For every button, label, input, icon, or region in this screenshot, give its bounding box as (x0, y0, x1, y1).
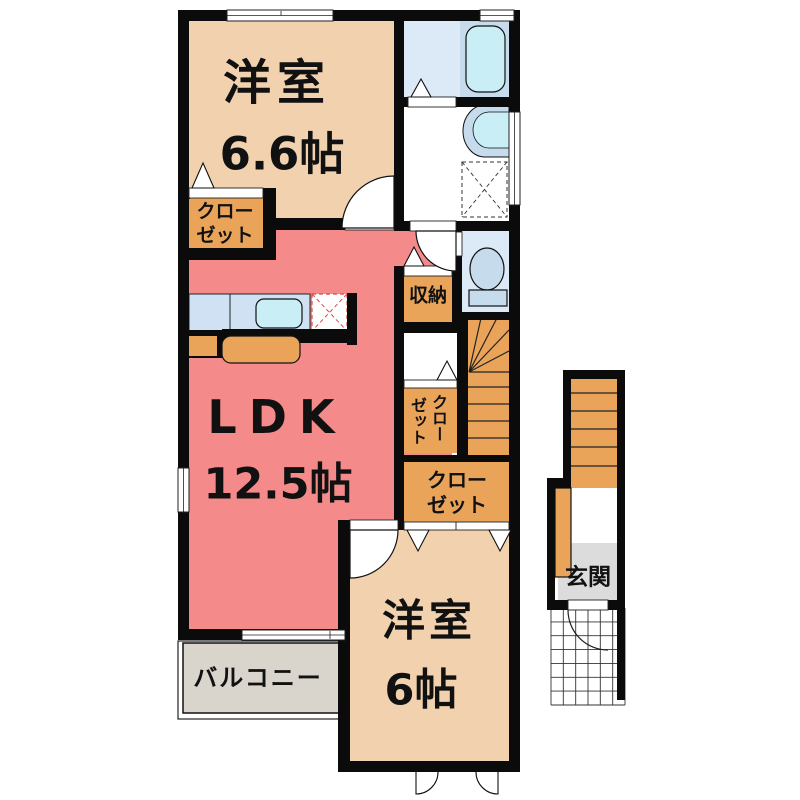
closet1-door (189, 188, 263, 198)
bedroom2-window-swing-left (416, 772, 438, 794)
wall-closet1-bottom (178, 248, 276, 260)
wall-under-stairs (394, 455, 520, 462)
wall-storage-bottom (404, 322, 452, 333)
closet3-double-door (404, 522, 509, 530)
bedroom2-doorway (350, 520, 398, 530)
wall-bedroom2-bottom (338, 761, 520, 772)
bathtub (466, 26, 505, 92)
closet2-label-left-column: ゼット (409, 397, 425, 445)
closet1-label-line2: ゼット (196, 227, 253, 246)
balcony-label: バルコニー (193, 666, 323, 690)
closet2-door (404, 380, 457, 388)
ldk-size-label: 12.5帖 (203, 464, 352, 507)
closet1-label-line1: クロー (196, 203, 253, 222)
kitchen-island (222, 336, 300, 363)
entrance-hall-floor (571, 488, 617, 543)
wall-bedroom1-right (394, 10, 404, 230)
bedroom2-size-label: 6帖 (385, 670, 458, 713)
closet2-label-right-column: クロー (430, 394, 446, 442)
bedroom1-size-label: 6.6帖 (220, 132, 345, 177)
wall-bedroom2-left (338, 520, 350, 772)
entrance-stairs-floor (571, 379, 617, 488)
washbasin-bowl (473, 112, 509, 148)
washing-machine-pan (462, 162, 507, 217)
toilet (469, 248, 507, 306)
closet3-label-line1: クロー (427, 470, 487, 490)
bedroom1-name-label: 洋室 (223, 59, 331, 107)
kitchen-sink (256, 299, 302, 328)
wall-left (178, 10, 189, 640)
ldk-name-label: LDK (207, 394, 346, 440)
outward-window-swings (416, 772, 498, 794)
kitchen-right-wall-stub (347, 293, 357, 345)
entry-door (568, 600, 608, 610)
wall-stairs-left (457, 318, 468, 462)
closet3-label-line2: ゼット (427, 495, 487, 515)
wall-closet-column-left (394, 266, 404, 530)
genkan-label: 玄関 (565, 567, 611, 590)
bathroom-door (408, 97, 456, 107)
floorplan-canvas: 洋室 6.6帖 LDK 12.5帖 洋室 6帖 クロー ゼット 収納 クロー ゼ… (0, 0, 800, 800)
bedroom2-window-swing-right (476, 772, 498, 794)
storage-label: 収納 (409, 287, 447, 306)
washroom-door (410, 221, 456, 231)
entrance-block (547, 370, 625, 705)
bedroom2-name-label: 洋室 (382, 601, 476, 644)
